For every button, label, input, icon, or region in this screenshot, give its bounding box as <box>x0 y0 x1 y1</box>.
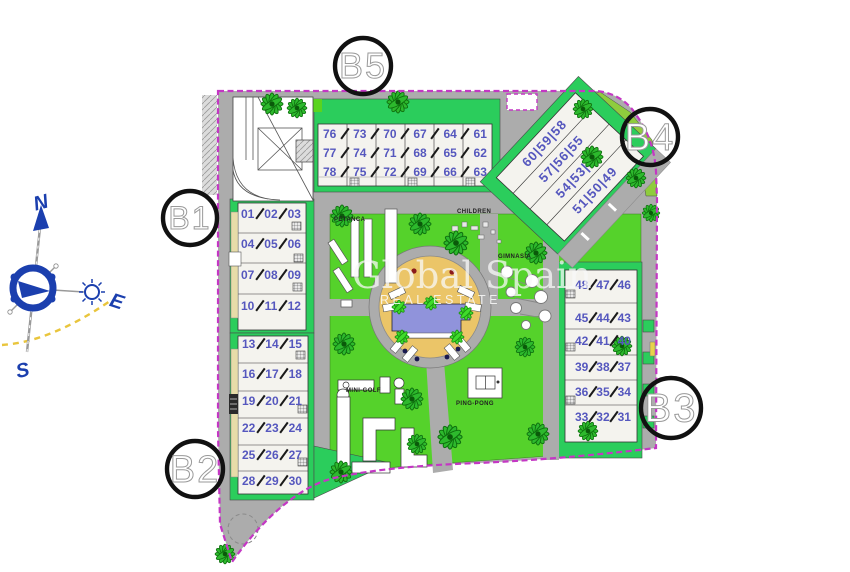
bush-icon <box>395 330 409 344</box>
sun-path-arc <box>2 301 110 345</box>
block-label-b5: B5 <box>339 45 387 86</box>
compass-north-label: N <box>31 190 51 215</box>
site-plan-canvas: 60|59|5857|56|5554|53|5251|50|49 <box>0 0 850 572</box>
pool-steps <box>407 333 457 338</box>
bush-icon <box>459 306 473 320</box>
stairwell-icon <box>296 351 305 359</box>
block-label-b4: B4 <box>625 117 675 159</box>
stairwell-icon <box>566 343 575 351</box>
site-plan-drawing: 60|59|5857|56|5554|53|5251|50|49 <box>0 0 850 572</box>
bush-icon <box>424 296 438 310</box>
compass-south-label: S <box>14 359 32 383</box>
stairwell-icon <box>294 254 303 262</box>
bush-icon <box>392 300 406 314</box>
block-label-b2: B2 <box>170 449 220 491</box>
building-b2 <box>229 336 308 494</box>
gate-marker <box>650 342 655 356</box>
stairwell-icon <box>298 405 307 413</box>
roadside-verge <box>202 95 217 195</box>
stairwell-icon <box>293 283 302 291</box>
stairwell-icon <box>466 178 475 186</box>
block-label-b3: B3 <box>645 387 698 431</box>
stairwell-icon <box>298 458 307 466</box>
stairwell-icon <box>566 290 575 298</box>
sun-icon <box>79 279 105 305</box>
building-b5 <box>318 124 492 186</box>
stairwell-icon <box>408 178 417 186</box>
stairwell-icon <box>566 396 575 404</box>
stairwell-icon <box>292 222 301 230</box>
bush-icon <box>450 330 464 344</box>
block-label-b1: B1 <box>168 200 211 236</box>
reserved-plot-outline <box>507 94 537 110</box>
ping-pong-table <box>468 368 502 398</box>
compass-east-label: E <box>107 289 127 314</box>
stairwell-icon <box>350 178 359 186</box>
compass-rose: N E S <box>2 190 127 383</box>
